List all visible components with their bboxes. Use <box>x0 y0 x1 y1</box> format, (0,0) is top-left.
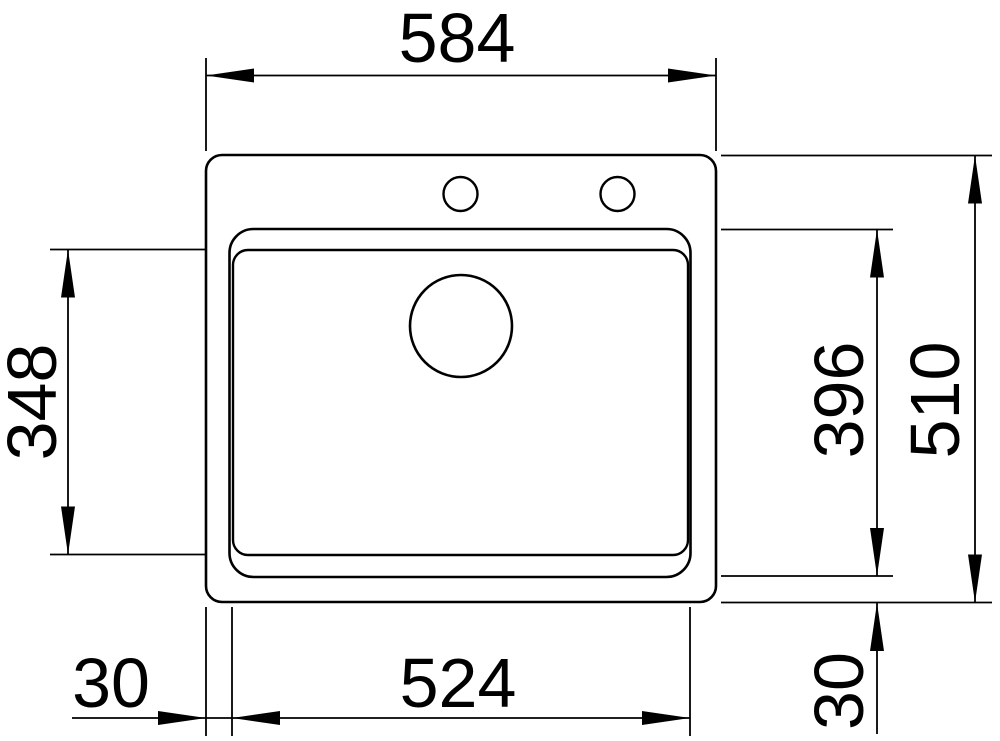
arrowhead-down <box>61 507 75 555</box>
technical-drawing-page: 584 348 396 510 30 524 30 <box>0 0 1000 741</box>
arrowhead-up <box>968 156 982 204</box>
arrowhead-left <box>232 711 280 725</box>
dim-label-overall-width: 584 <box>399 0 516 77</box>
arrowhead-down <box>968 555 982 603</box>
arrowhead-down <box>870 528 884 576</box>
dim-label-overall-depth: 510 <box>896 342 974 459</box>
sink-outer-edge <box>206 155 716 602</box>
arrowhead-right <box>158 711 206 725</box>
dimension-labels: 584 348 396 510 30 524 30 <box>0 0 974 730</box>
dim-label-bowl-outer-width: 524 <box>400 644 517 722</box>
faucet-hole-left <box>444 177 478 211</box>
arrowhead-up <box>870 603 884 651</box>
faucet-hole-right <box>601 177 635 211</box>
sink-dimension-drawing: 584 348 396 510 30 524 30 <box>0 0 1000 741</box>
arrowhead-right <box>668 69 716 83</box>
bowl-rim-edge <box>230 229 691 577</box>
dim-label-bottom-edge-offset: 30 <box>800 652 878 730</box>
arrowhead-up <box>870 230 884 278</box>
drain-hole <box>410 275 512 377</box>
dim-label-left-edge-offset: 30 <box>72 644 150 722</box>
sink-outlines <box>206 155 716 602</box>
bowl-inner-edge <box>233 250 688 555</box>
arrowhead-right <box>642 711 690 725</box>
arrowhead-left <box>206 69 254 83</box>
arrowhead-up <box>61 250 75 298</box>
dim-label-bowl-inner-depth: 348 <box>0 344 71 461</box>
dim-label-bowl-outer-depth: 396 <box>800 342 878 459</box>
